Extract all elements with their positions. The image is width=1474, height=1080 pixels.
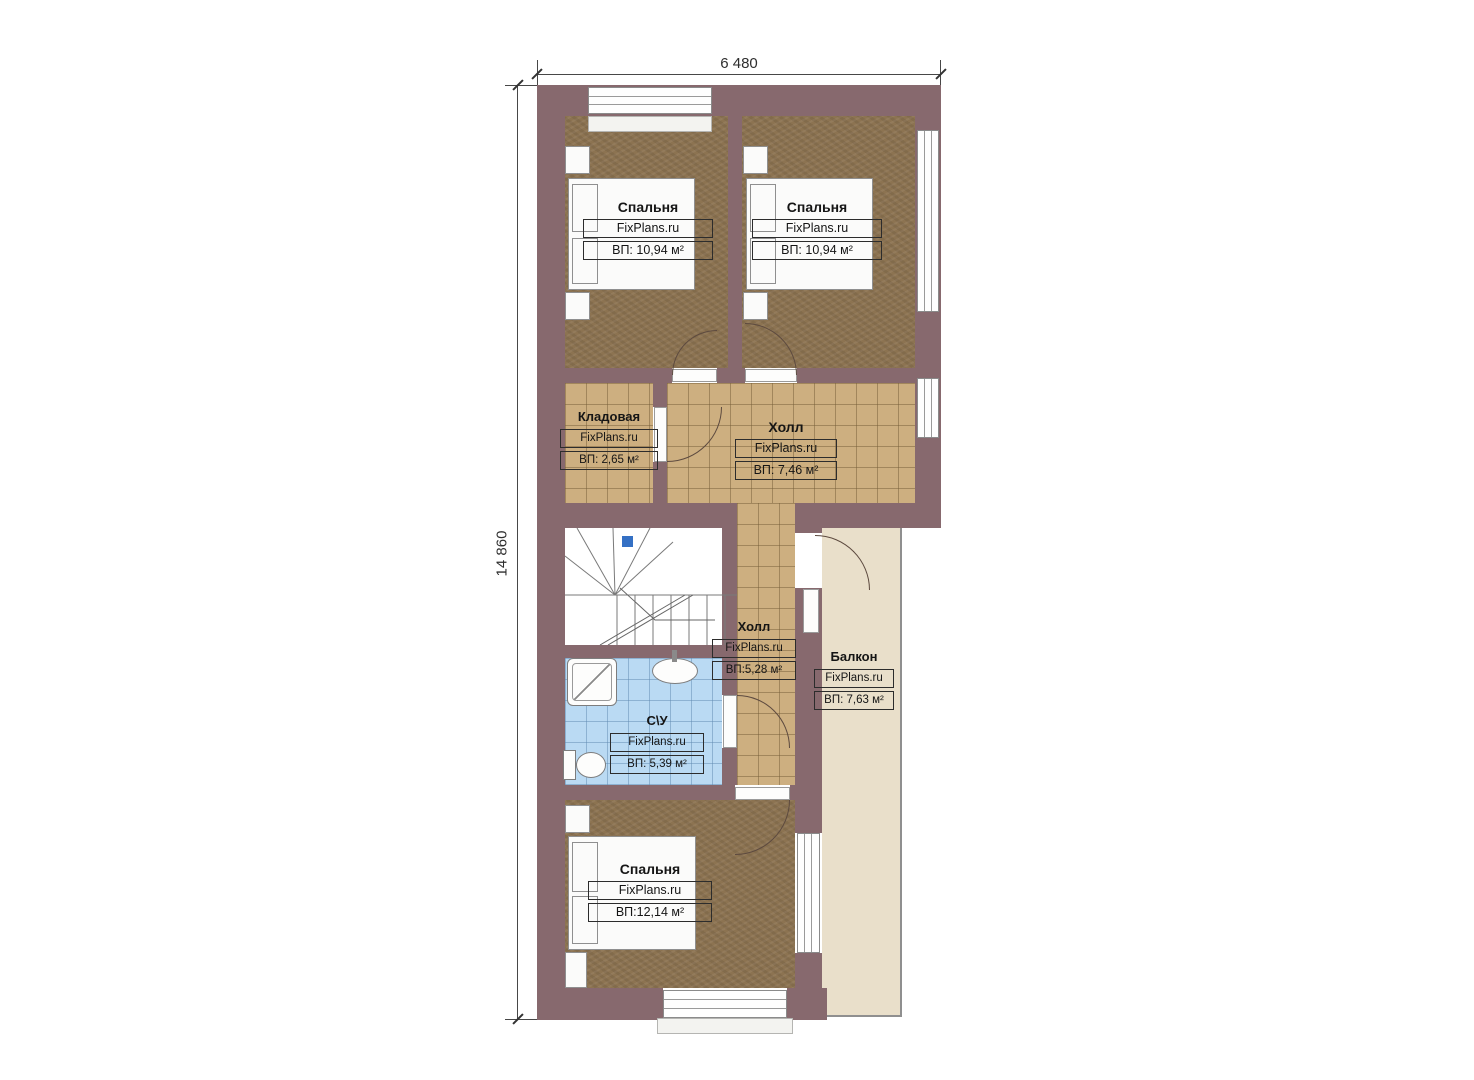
dimension-height-label: 14 860 <box>494 514 511 594</box>
room-area: ВП: 7,46 м² <box>735 461 837 480</box>
room-label-balcony: Балкон FixPlans.ru ВП: 7,63 м² <box>814 648 894 710</box>
wall-segment <box>728 116 742 368</box>
wall-segment <box>537 785 735 800</box>
room-watermark: FixPlans.ru <box>752 219 882 238</box>
room-area: ВП:5,28 м² <box>712 661 796 680</box>
room-watermark: FixPlans.ru <box>814 669 894 688</box>
window <box>588 87 712 114</box>
floor-balcony <box>822 528 902 1017</box>
room-area: ВП: 10,94 м² <box>583 241 713 260</box>
room-label-bedroom-top-left: Спальня FixPlans.ru ВП: 10,94 м² <box>583 198 713 260</box>
toilet-bowl <box>576 752 606 778</box>
room-name: Холл <box>712 618 796 636</box>
room-label-storage: Кладовая FixPlans.ru ВП: 2,65 м² <box>560 408 658 470</box>
stair-level-marker-icon <box>622 536 633 547</box>
wall-segment <box>653 383 667 407</box>
dimension-line <box>517 85 518 1020</box>
window-sill <box>588 116 712 132</box>
nightstand <box>565 805 590 833</box>
room-name: Кладовая <box>560 408 658 426</box>
window-sill <box>657 1018 793 1034</box>
wall-segment <box>797 368 915 383</box>
floor-plan: Спальня FixPlans.ru ВП: 10,94 м² Спальня… <box>0 0 1474 1080</box>
shower-tray <box>567 658 617 706</box>
dimension-extension <box>505 85 537 86</box>
room-watermark: FixPlans.ru <box>560 429 658 448</box>
window <box>917 378 939 438</box>
room-label-hall-upper: Холл FixPlans.ru ВП: 7,46 м² <box>735 418 837 480</box>
wall-segment <box>537 503 737 528</box>
room-name: Спальня <box>583 198 713 216</box>
nightstand <box>743 146 768 174</box>
room-name: Балкон <box>814 648 894 666</box>
room-label-bathroom: С\У FixPlans.ru ВП: 5,39 м² <box>610 712 704 774</box>
door-leaf <box>735 787 790 800</box>
shower-drain <box>572 663 612 701</box>
wall-segment <box>565 645 722 658</box>
room-label-hall-lower: Холл FixPlans.ru ВП:5,28 м² <box>712 618 796 680</box>
wall-segment <box>790 785 822 800</box>
dimension-line <box>537 74 941 75</box>
room-area: ВП: 7,63 м² <box>814 691 894 710</box>
window <box>917 130 939 312</box>
wall-segment <box>787 988 827 1020</box>
room-area: ВП: 5,39 м² <box>610 755 704 774</box>
room-name: Спальня <box>752 198 882 216</box>
door-leaf <box>803 589 819 633</box>
nightstand <box>565 292 590 320</box>
nightstand <box>743 292 768 320</box>
wardrobe <box>565 952 587 988</box>
room-area: ВП: 10,94 м² <box>752 241 882 260</box>
wall-segment <box>537 988 663 1020</box>
sink-tap <box>672 650 677 662</box>
room-watermark: FixPlans.ru <box>610 733 704 752</box>
room-label-bedroom-bottom: Спальня FixPlans.ru ВП:12,14 м² <box>588 860 712 922</box>
room-name: Холл <box>735 418 837 436</box>
wall-segment <box>565 368 672 383</box>
dimension-extension <box>505 1019 537 1020</box>
wall-segment <box>722 748 737 785</box>
nightstand <box>565 146 590 174</box>
room-name: Спальня <box>588 860 712 878</box>
wall-segment <box>537 85 565 1020</box>
room-area: ВП: 2,65 м² <box>560 451 658 470</box>
room-watermark: FixPlans.ru <box>735 439 837 458</box>
window <box>663 990 787 1018</box>
room-watermark: FixPlans.ru <box>583 219 713 238</box>
dimension-width-label: 6 480 <box>537 55 941 72</box>
toilet-tank <box>563 750 576 780</box>
wall-segment <box>795 503 941 528</box>
door-leaf <box>723 695 737 748</box>
wall-segment <box>717 368 745 383</box>
window <box>797 833 820 953</box>
room-label-bedroom-top-right: Спальня FixPlans.ru ВП: 10,94 м² <box>752 198 882 260</box>
room-area: ВП:12,14 м² <box>588 903 712 922</box>
room-name: С\У <box>610 712 704 730</box>
wall-segment <box>795 528 822 533</box>
room-watermark: FixPlans.ru <box>712 639 796 658</box>
room-watermark: FixPlans.ru <box>588 881 712 900</box>
